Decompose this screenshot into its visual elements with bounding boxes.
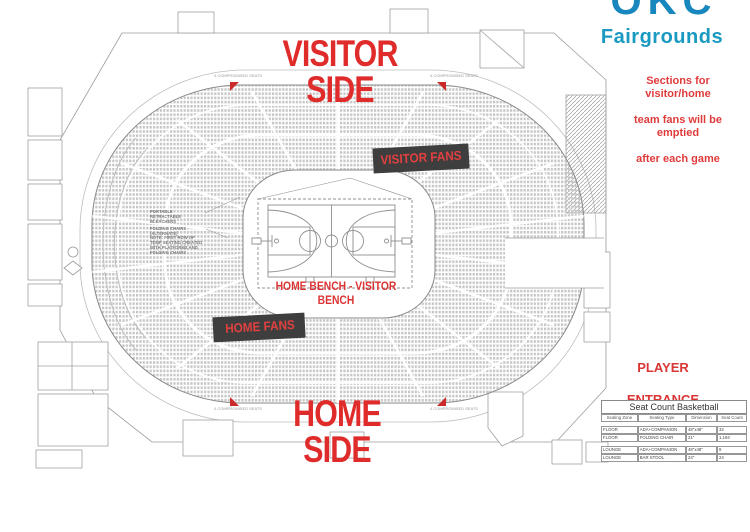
cell-count: 32 [717,426,747,434]
notice-line2: team fans will be emptied [612,114,744,140]
cell-count: 1,194 [717,434,747,442]
cell-count: 24 [717,454,747,462]
cell-dim: 48"x48" [686,426,717,434]
compromised-seats-label-bottom-left: 4 COMPROMISED SEATS [214,407,274,412]
table-row: FLOOR FOLDING CHAIR 21" 1,194 [601,434,747,442]
cell-count: 8 [717,446,747,454]
notice-line3: after each game [612,153,744,166]
fan-section-notice: Sections for visitor/home team fans will… [612,62,744,179]
cell-zone: FLOOR [601,434,638,442]
cell-type: FOLDING CHAIR [638,434,686,442]
cell-dim: 48"x48" [686,446,717,454]
compromised-seats-label-top-left: 4 COMPROMISED SEATS [214,74,274,79]
table-row: LOUNGE ADA+COMPANION 48"x48" 8 [601,446,747,454]
header-dimension: Dimension [686,414,717,422]
table-row: LOUNGE BAR STOOL 24" 24 [601,454,747,462]
cell-dim: 24" [686,454,717,462]
cell-dim: 21" [686,434,717,442]
cell-type: ADA+COMPANION [638,446,686,454]
seat-count-table-header: Seating Zone Seating Type Dimension Seat… [601,414,747,422]
table-row: FLOOR ADA+COMPANION 48"x48" 32 [601,426,747,434]
notice-line1: Sections for visitor/home [612,75,744,101]
annotation-temp-seating-note: NOTE: FIRST ROW OF TEMP SEATING CREATED … [150,235,206,255]
visitor-side-title: VISITOR SIDE [261,36,418,108]
arena-seating-chart: VISITOR SIDE HOME SIDE VISITOR FANS HOME… [0,0,750,532]
cell-type: ADA+COMPANION [638,426,686,434]
annotation-portable-bleachers: PORTABLE RETRACTABLE BLEACHERS [150,209,204,224]
header-seat-count: Seat Count [717,414,747,422]
header-seating-zone: Seating Zone [601,414,638,422]
cell-type: BAR STOOL [638,454,686,462]
compromised-seats-label-bottom-right: 4 COMPROMISED SEATS [430,407,490,412]
cell-zone: FLOOR [601,426,638,434]
okc-logo: OKC [608,0,720,24]
header-seating-type: Seating Type [638,414,686,422]
bench-label: HOME BENCH - VISITOR BENCH [267,279,405,307]
home-side-title: HOME SIDE [263,396,411,468]
compromised-seats-label-top-right: 4 COMPROMISED SEATS [430,74,490,79]
player-entrance-tunnel [505,238,605,288]
cell-zone: LOUNGE [601,446,638,454]
player-entrance-line1: PLAYER [618,360,708,376]
fairgrounds-wordmark: Fairgrounds [596,26,728,49]
seat-count-table: Seat Count Basketball Seating Zone Seati… [601,400,747,462]
seat-count-table-title: Seat Count Basketball [601,400,747,414]
cell-zone: LOUNGE [601,454,638,462]
